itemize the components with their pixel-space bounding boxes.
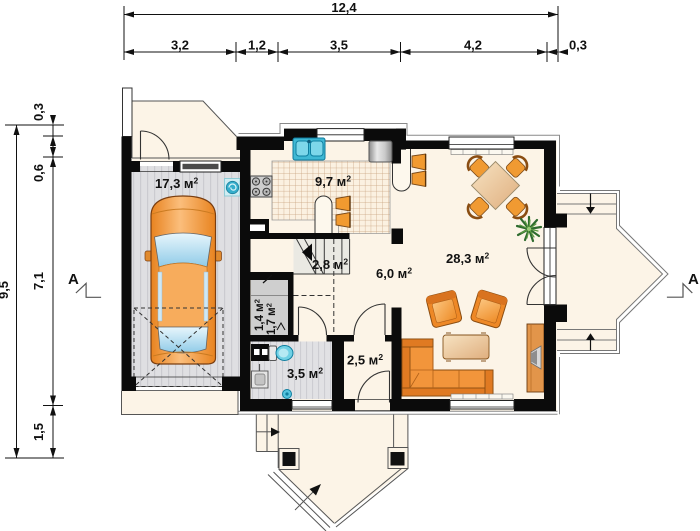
svg-text:17,3 м2: 17,3 м2 (155, 176, 199, 192)
svg-text:0,6: 0,6 (31, 164, 46, 182)
svg-text:7,1: 7,1 (31, 272, 46, 290)
svg-text:6,0 м2: 6,0 м2 (376, 266, 412, 282)
svg-text:12,4: 12,4 (331, 0, 357, 15)
svg-text:A: A (68, 271, 79, 288)
svg-text:3,2: 3,2 (171, 38, 189, 53)
svg-text:1,7 м2: 1,7 м2 (265, 303, 279, 335)
svg-text:3,5: 3,5 (330, 38, 348, 53)
svg-text:9,7 м2: 9,7 м2 (315, 174, 351, 190)
svg-text:0,3: 0,3 (569, 38, 587, 53)
svg-text:0,3: 0,3 (31, 103, 46, 121)
svg-text:9,5: 9,5 (0, 281, 11, 299)
svg-text:28,3 м2: 28,3 м2 (446, 251, 490, 267)
svg-text:A: A (688, 271, 699, 288)
svg-text:3,5 м2: 3,5 м2 (287, 366, 323, 382)
svg-text:2,8 м2: 2,8 м2 (312, 257, 348, 273)
svg-text:2,5 м2: 2,5 м2 (347, 352, 383, 368)
svg-text:1,2: 1,2 (248, 38, 266, 53)
svg-text:1,5: 1,5 (31, 423, 46, 441)
svg-text:4,2: 4,2 (464, 38, 482, 53)
